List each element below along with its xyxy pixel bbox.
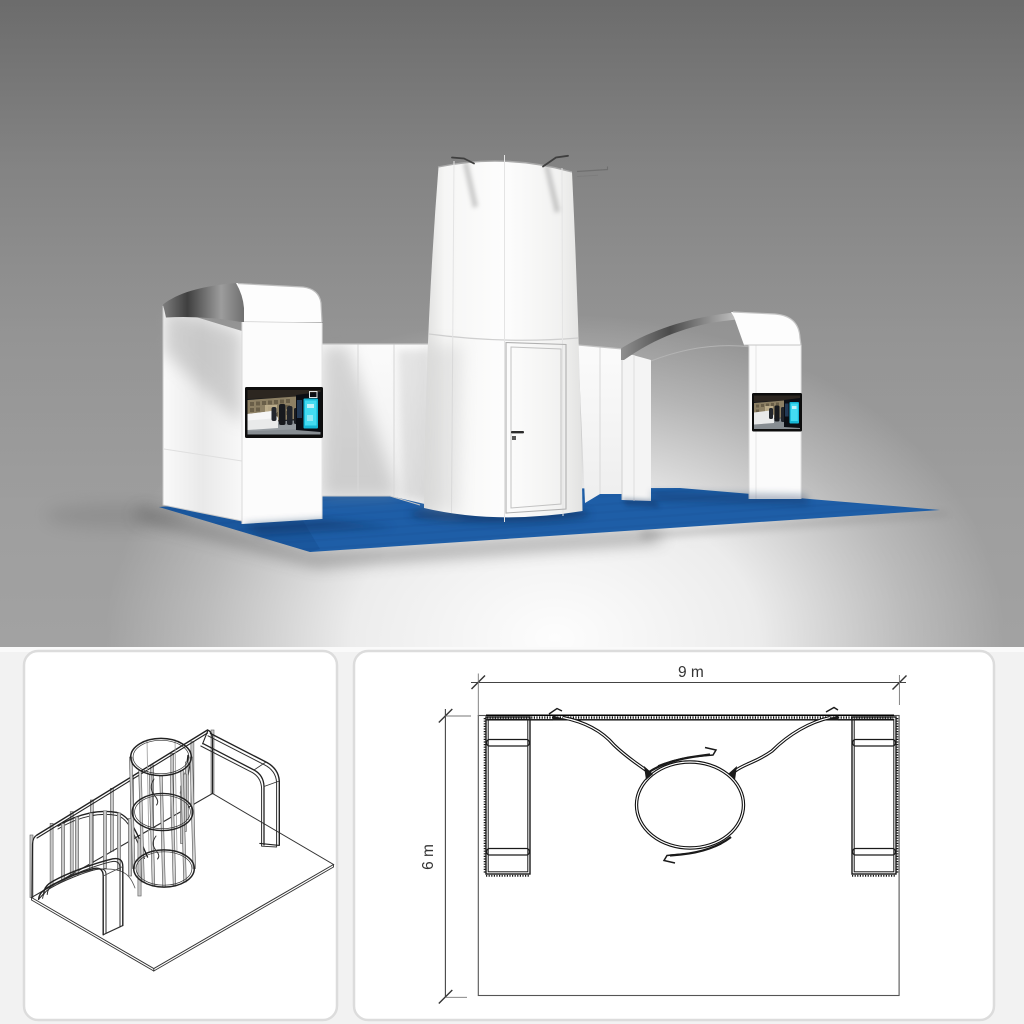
svg-text:9 m: 9 m <box>678 664 704 681</box>
svg-text:6 m: 6 m <box>420 844 437 870</box>
